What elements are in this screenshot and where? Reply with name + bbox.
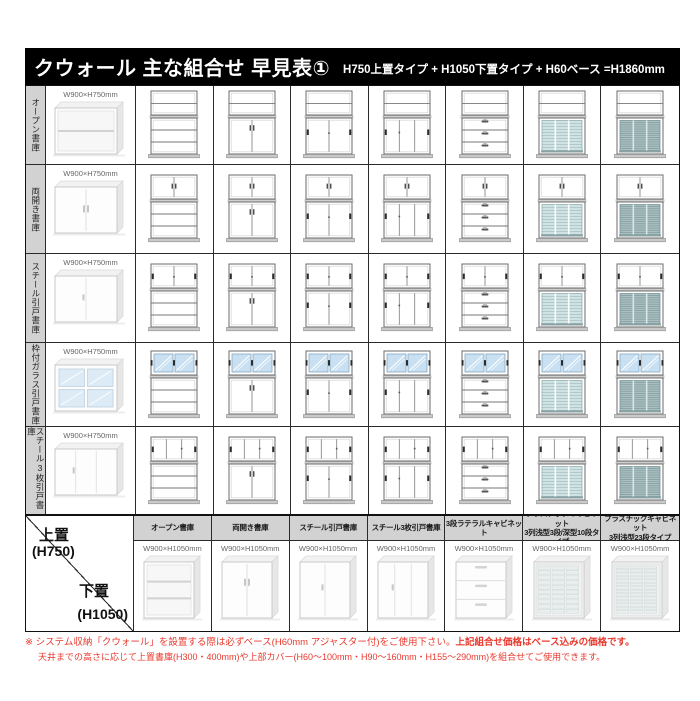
- row-label-text: オープン書庫: [31, 98, 40, 152]
- lower-size-label: W900×H1050mm: [377, 544, 436, 553]
- combo-sliding3-plus-plastic23: [601, 427, 679, 514]
- row-thumbnail-0: W900×H750mm: [46, 86, 136, 165]
- combo-glass2-plus-hinged: [214, 343, 292, 427]
- combo-sliding2-plus-plastic23: [601, 254, 679, 343]
- lower-column-1: 両開き書庫W900×H1050mm: [212, 516, 290, 631]
- combo-glass2-plus-open: [136, 343, 214, 427]
- combo-sliding2-plus-open: [136, 254, 214, 343]
- combo-sliding3-plus-plastic10: [524, 427, 602, 514]
- cabinet-photo-plastic23: [609, 553, 671, 631]
- lower-column-body: W900×H1050mm: [523, 541, 600, 631]
- row-label-4: スチール3枚引戸書庫: [26, 427, 46, 514]
- cabinet-photo-hinged: [49, 178, 133, 245]
- row-label-text: 両開き書庫: [31, 187, 40, 232]
- combo-sliding2-plus-sliding3: [369, 254, 447, 343]
- row-size-label: W900×H750mm: [63, 169, 117, 178]
- combo-glass2-plus-plastic23: [601, 343, 679, 427]
- row-label-text: 枠付ガラス引戸書庫: [31, 344, 40, 425]
- lower-column-header: スチール引戸書庫: [290, 516, 367, 541]
- catalog-page: クウォール 主な組合せ 早見表① H750上置タイプ + H1050下置タイプ …: [0, 0, 700, 701]
- row-label-1: 両開き書庫: [26, 165, 46, 254]
- row-thumbnail-2: W900×H750mm: [46, 254, 136, 343]
- cabinet-photo-open: [49, 99, 133, 165]
- combo-hinged-plus-sliding3: [369, 165, 447, 254]
- lower-size-label: W900×H1050mm: [143, 544, 202, 553]
- combo-sliding2-plus-lateral3: [446, 254, 524, 343]
- combo-open-plus-hinged: [214, 86, 292, 165]
- lower-column-header: オープン書庫: [134, 516, 211, 541]
- lower-column-body: W900×H1050mm: [290, 541, 367, 631]
- combo-glass2-plus-lateral3: [446, 343, 524, 427]
- combo-open-plus-sliding2: [291, 86, 369, 165]
- combo-open-plus-sliding3: [369, 86, 447, 165]
- lower-size-label: W900×H1050mm: [455, 544, 514, 553]
- lower-column-header: スチール3枚引戸書庫: [368, 516, 445, 541]
- cabinet-photo-sliding3: [375, 553, 437, 631]
- page-title: クウォール 主な組合せ 早見表①: [34, 52, 330, 81]
- upper-lower-axis-cell: 上置 (H750) 下置 (H1050): [26, 516, 134, 631]
- row-size-label: W900×H750mm: [63, 347, 117, 356]
- combo-sliding3-plus-lateral3: [446, 427, 524, 514]
- cabinet-photo-hinged: [219, 553, 281, 631]
- page-subtitle: H750上置タイプ + H1050下置タイプ + H60ベース =H1860mm: [343, 57, 665, 77]
- footnote-line1: ※ システム収納「クウォール」を設置する際は必ずベース(H60mm アジャスター…: [25, 637, 685, 650]
- lower-column-6: プラスチックキャビネット 3列浅型23段タイプW900×H1050mm: [601, 516, 679, 631]
- combo-hinged-plus-plastic23: [601, 165, 679, 254]
- row-label-text: スチール引戸書庫: [31, 262, 40, 334]
- combo-hinged-plus-open: [136, 165, 214, 254]
- combo-open-plus-plastic23: [601, 86, 679, 165]
- lower-unit-label: 下置: [79, 580, 109, 601]
- row-thumbnail-3: W900×H750mm: [46, 343, 136, 427]
- combo-hinged-plus-lateral3: [446, 165, 524, 254]
- combo-glass2-plus-sliding3: [369, 343, 447, 427]
- row-label-text: スチール3枚引戸書庫: [27, 427, 44, 514]
- lower-column-5: プラスチックキャビネット 3列浅型3段/深型10段タイプW900×H1050mm: [523, 516, 601, 631]
- row-size-label: W900×H750mm: [63, 258, 117, 267]
- row-label-0: オープン書庫: [26, 86, 46, 165]
- combo-glass2-plus-sliding2: [291, 343, 369, 427]
- cabinet-photo-lateral3: [453, 553, 515, 631]
- cabinet-photo-sliding2: [297, 553, 359, 631]
- cabinet-photo-open: [141, 553, 203, 631]
- combo-sliding2-plus-sliding2: [291, 254, 369, 343]
- lower-column-header: 3段ラテラルキャビネット: [445, 516, 522, 541]
- combo-sliding2-plus-hinged: [214, 254, 292, 343]
- lower-column-4: 3段ラテラルキャビネットW900×H1050mm: [445, 516, 523, 631]
- combo-hinged-plus-sliding2: [291, 165, 369, 254]
- lower-size-label: W900×H1050mm: [299, 544, 358, 553]
- lower-size-label: W900×H1050mm: [532, 544, 591, 553]
- lower-column-header: プラスチックキャビネット 3列浅型3段/深型10段タイプ: [523, 516, 600, 541]
- combination-table: オープン書庫W900×H750mm両開き書庫W900×H750mmスチール引戸書…: [25, 85, 680, 515]
- lower-column-body: W900×H1050mm: [445, 541, 522, 631]
- row-label-3: 枠付ガラス引戸書庫: [26, 343, 46, 427]
- footnote-line2: 天井までの高さに応じて上置書庫(H300・400mm)や上部カバー(H60〜10…: [38, 651, 685, 663]
- cabinet-photo-sliding2: [49, 267, 133, 334]
- row-thumbnail-1: W900×H750mm: [46, 165, 136, 254]
- row-size-label: W900×H750mm: [63, 431, 117, 440]
- footnote-line1-bold: 上記組合せ価格はベース込みの価格です。: [456, 637, 635, 648]
- combo-glass2-plus-plastic10: [524, 343, 602, 427]
- lower-column-body: W900×H1050mm: [368, 541, 445, 631]
- upper-unit-label: 上置: [39, 524, 69, 545]
- lower-column-body: W900×H1050mm: [134, 541, 211, 631]
- lower-size-label: W900×H1050mm: [611, 544, 670, 553]
- combo-sliding2-plus-plastic10: [524, 254, 602, 343]
- upper-unit-size: (H750): [32, 543, 75, 559]
- cabinet-photo-plastic10: [531, 553, 593, 631]
- row-label-2: スチール引戸書庫: [26, 254, 46, 343]
- combo-open-plus-lateral3: [446, 86, 524, 165]
- lower-column-body: W900×H1050mm: [212, 541, 289, 631]
- lower-column-header: 両開き書庫: [212, 516, 289, 541]
- combo-sliding3-plus-hinged: [214, 427, 292, 514]
- row-thumbnail-4: W900×H750mm: [46, 427, 136, 514]
- lower-column-0: オープン書庫W900×H1050mm: [134, 516, 212, 631]
- lower-column-body: W900×H1050mm: [601, 541, 679, 631]
- row-size-label: W900×H750mm: [63, 90, 117, 99]
- cabinet-photo-glass2: [49, 356, 133, 423]
- lower-column-3: スチール3枚引戸書庫W900×H1050mm: [368, 516, 446, 631]
- combo-open-plus-plastic10: [524, 86, 602, 165]
- combo-sliding3-plus-sliding3: [369, 427, 447, 514]
- lower-column-2: スチール引戸書庫W900×H1050mm: [290, 516, 368, 631]
- lower-units-table: 上置 (H750) 下置 (H1050) オープン書庫W900×H1050mm両…: [25, 515, 680, 632]
- cabinet-photo-sliding3: [49, 440, 133, 507]
- title-bar: クウォール 主な組合せ 早見表① H750上置タイプ + H1050下置タイプ …: [25, 48, 680, 85]
- combo-hinged-plus-plastic10: [524, 165, 602, 254]
- combo-sliding3-plus-open: [136, 427, 214, 514]
- lower-size-label: W900×H1050mm: [221, 544, 280, 553]
- combo-open-plus-open: [136, 86, 214, 165]
- combo-sliding3-plus-sliding2: [291, 427, 369, 514]
- footnote: ※ システム収納「クウォール」を設置する際は必ずベース(H60mm アジャスター…: [25, 637, 685, 663]
- lower-column-header: プラスチックキャビネット 3列浅型23段タイプ: [601, 516, 679, 541]
- lower-unit-size: (H1050): [77, 606, 128, 622]
- combo-hinged-plus-hinged: [214, 165, 292, 254]
